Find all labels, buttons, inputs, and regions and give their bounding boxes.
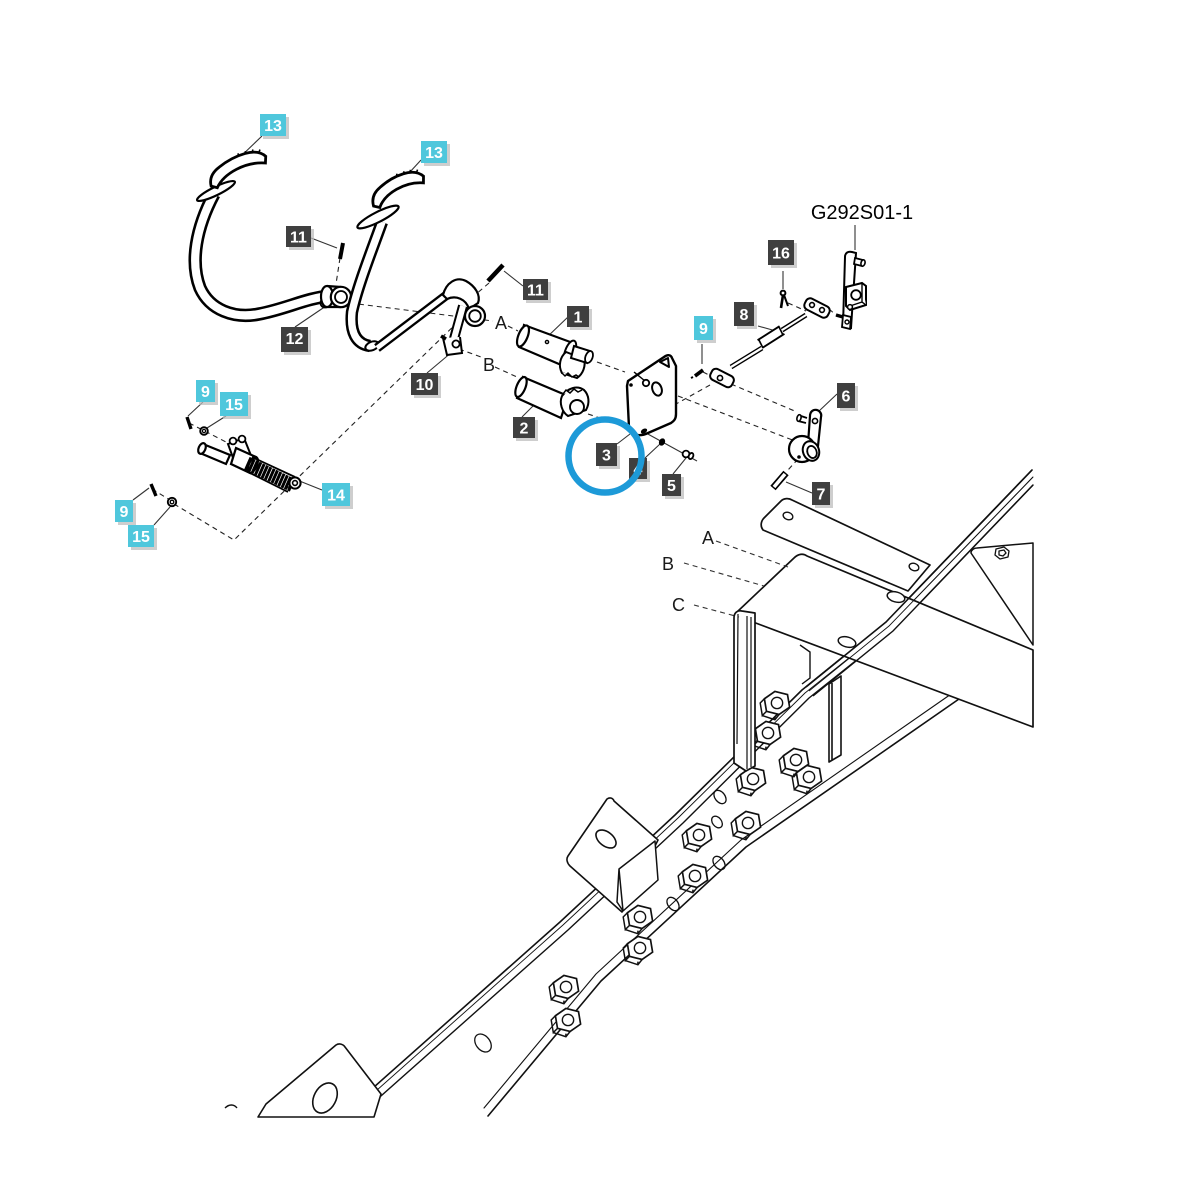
svg-text:A: A (495, 313, 507, 333)
svg-text:10: 10 (416, 377, 434, 394)
svg-text:2: 2 (520, 420, 529, 437)
svg-text:7: 7 (817, 486, 826, 503)
svg-text:1: 1 (574, 309, 583, 326)
svg-text:15: 15 (132, 529, 150, 546)
svg-text:14: 14 (327, 487, 345, 504)
svg-text:3: 3 (602, 447, 611, 464)
svg-text:C: C (672, 595, 685, 615)
svg-text:B: B (662, 554, 674, 574)
svg-text:9: 9 (120, 504, 129, 521)
svg-text:15: 15 (225, 397, 243, 414)
svg-text:5: 5 (667, 478, 676, 495)
svg-text:12: 12 (286, 331, 304, 348)
svg-text:9: 9 (699, 321, 708, 338)
svg-text:9: 9 (201, 384, 210, 401)
svg-text:16: 16 (772, 245, 790, 262)
svg-text:6: 6 (842, 388, 851, 405)
svg-text:G292S01-1: G292S01-1 (811, 202, 913, 224)
svg-text:11: 11 (527, 282, 544, 299)
svg-text:A: A (702, 528, 714, 548)
svg-text:13: 13 (425, 145, 443, 162)
svg-text:11: 11 (290, 229, 307, 246)
svg-text:13: 13 (264, 118, 282, 135)
svg-text:B: B (483, 355, 495, 375)
svg-text:8: 8 (740, 307, 749, 324)
